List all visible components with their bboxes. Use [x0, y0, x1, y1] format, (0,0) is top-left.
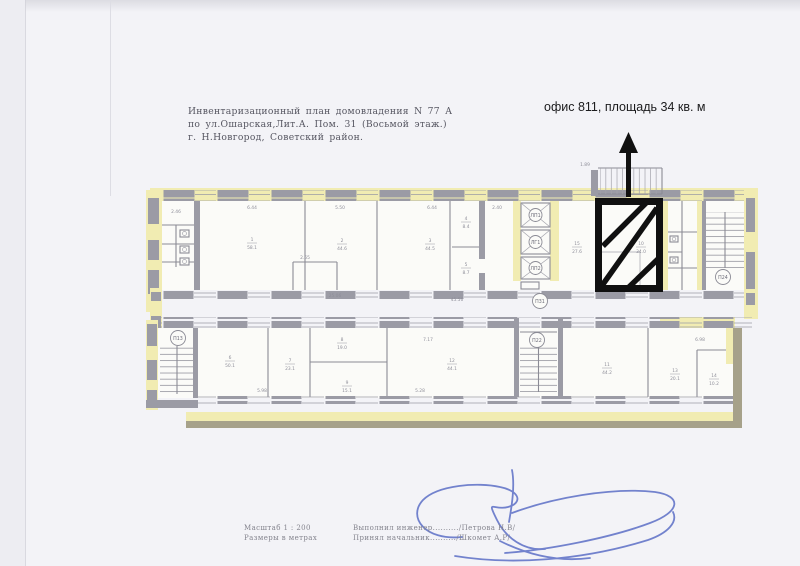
signature-scribble [417, 470, 674, 561]
room-number: 14 [711, 373, 717, 379]
dim-label: 6.44 [247, 205, 257, 211]
top-wing: ЛП1 ЛГ1 ЛП2 [146, 188, 758, 312]
executed-by: Выполнил инженер........../Петрова Н.В/ [353, 524, 515, 534]
room-number: 6 [229, 355, 232, 361]
room-number: 8 [341, 337, 344, 343]
scale-note: Масштаб 1 : 200 [244, 524, 317, 534]
dim-label: 2.65 [300, 255, 310, 261]
footer-scale-block: Масштаб 1 : 200 Размеры в метрах [244, 524, 317, 543]
dim-label: 7.17 [423, 337, 433, 343]
units-note: Размеры в метрах [244, 534, 317, 544]
dim-label: 6.44 [427, 205, 437, 211]
dim-label: 6.98 [695, 337, 705, 343]
room-area: 19.0 [337, 345, 347, 351]
room-area: 23.1 [285, 366, 295, 372]
accepted-by: Принял начальник........../Шкомет А.Р/ [353, 534, 515, 544]
room-number: 10 [638, 241, 644, 247]
footer-signature-block: Выполнил инженер........../Петрова Н.В/ … [353, 524, 515, 543]
room-area: 44.1 [447, 366, 457, 372]
room-number: 1 [251, 237, 254, 243]
room-area: 27.6 [572, 249, 582, 255]
room-area: 44.6 [337, 246, 347, 252]
room-area: 58.1 [247, 245, 257, 251]
dim-label: 5.28 [415, 388, 425, 394]
room-number: 3 [429, 238, 432, 244]
room-area: 44.2 [602, 370, 612, 376]
dim-label: 5.50 [335, 205, 345, 211]
bottom-wing: П13 П22 [146, 317, 752, 428]
elevator-1-label: ЛП1 [530, 213, 540, 219]
dim-label: 1.89 [580, 162, 590, 168]
corridor-label: П31 [535, 299, 545, 305]
elevator-shafts: ЛП1 ЛГ1 ЛП2 [513, 201, 559, 289]
room-number: 7 [289, 358, 292, 364]
stair-label-top-right: П24 [718, 275, 728, 281]
room-area: 44.5 [425, 246, 435, 252]
floor-plan-drawing: ЛП1 ЛГ1 ЛП2 [0, 0, 800, 566]
room-area: 15.1 [342, 388, 352, 394]
elevator-2-label: ЛГ1 [531, 240, 541, 246]
scanned-floor-plan-page: Инвентаризационный план домовладения N 7… [0, 0, 800, 566]
dim-label: 2.40 [492, 205, 502, 211]
room-number: 5 [465, 262, 468, 268]
room-area: 8.7 [463, 270, 470, 276]
dim-label: 5.98 [257, 388, 267, 394]
room-area: 50.1 [225, 363, 235, 369]
room-number: 12 [449, 358, 455, 364]
room-number: 13 [672, 368, 678, 374]
elevator-3-label: ЛП2 [530, 266, 540, 272]
room-number: 2 [341, 238, 344, 244]
dim-label: 45.56 [451, 297, 464, 303]
stair-label-bottom-left: П13 [173, 336, 183, 342]
room-number: 15 [574, 241, 580, 247]
room-area: 20.1 [670, 376, 680, 382]
room-area: 8.4 [463, 224, 470, 230]
room-area: 34.0 [636, 249, 646, 255]
room-number: 11 [604, 362, 610, 368]
room-number: 9 [346, 380, 349, 386]
stair-label-bottom-middle: П22 [532, 338, 542, 344]
dim-label: 25.06 [329, 293, 342, 299]
dim-label: 2.46 [171, 209, 181, 215]
room-number: 4 [465, 216, 468, 222]
room-area: 10.2 [709, 381, 719, 387]
